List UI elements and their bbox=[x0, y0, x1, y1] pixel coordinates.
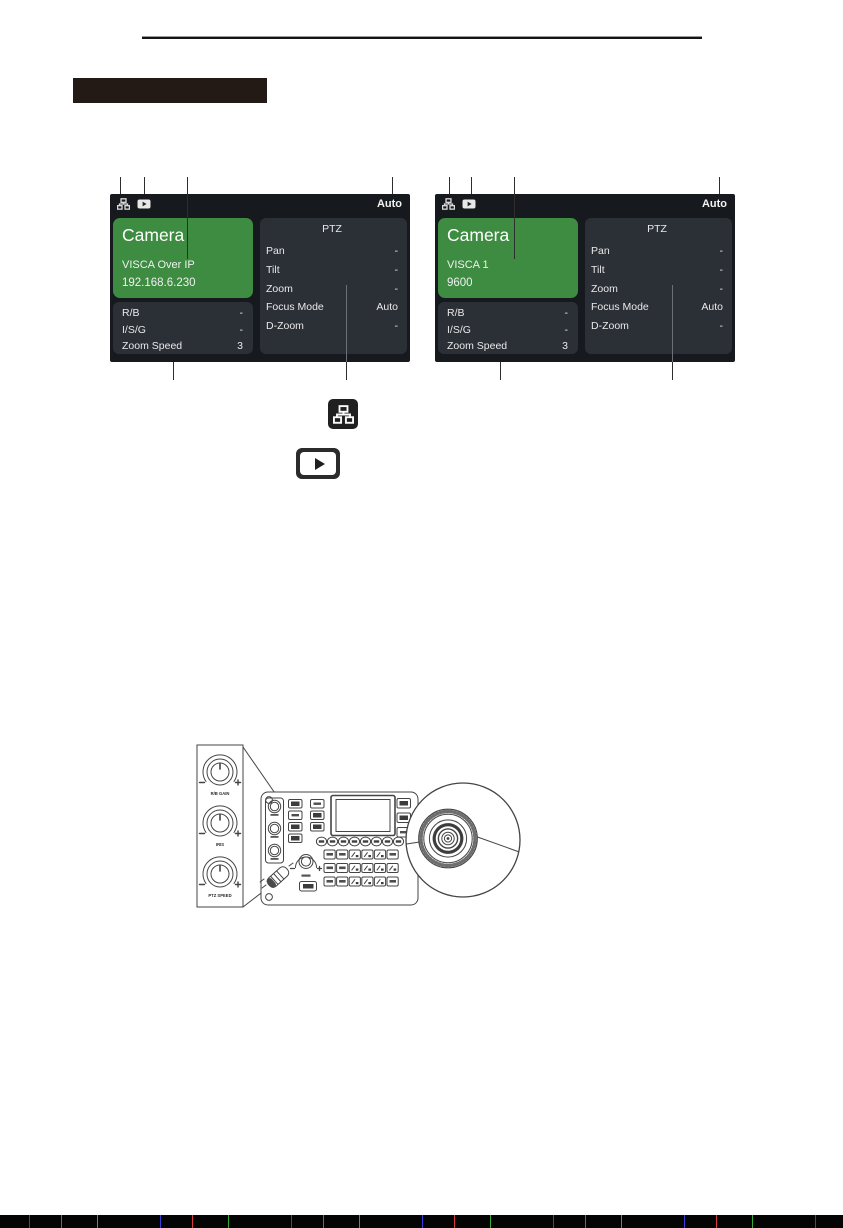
ptz-row: D-Zoom- bbox=[266, 317, 398, 336]
callout-line bbox=[449, 177, 450, 194]
callout-line bbox=[346, 285, 347, 362]
camera-address: 192.168.6.230 bbox=[122, 277, 253, 290]
settings-row: I/S/G- bbox=[447, 322, 568, 339]
callout-line bbox=[500, 362, 501, 380]
settings-row: R/B- bbox=[447, 305, 568, 322]
lcd1-status-bar: Auto bbox=[110, 194, 410, 213]
lcd-panel-1: Auto Camera VISCA Over IP 192.168.6.230 … bbox=[110, 194, 410, 362]
section-header-redacted-box bbox=[73, 78, 267, 103]
callout-line bbox=[392, 177, 393, 194]
play-icon bbox=[296, 448, 340, 479]
ptz-row: Pan- bbox=[266, 242, 398, 261]
status-mode-label: Auto bbox=[377, 198, 402, 210]
callout-line bbox=[243, 747, 279, 799]
settings-row: R/B- bbox=[122, 305, 243, 322]
lcd-panel-2: Auto Camera VISCA 1 9600 R/B- I/S/G- Zoo… bbox=[435, 194, 735, 362]
ptz-row: Tilt- bbox=[591, 261, 723, 280]
lcd2-status-bar: Auto bbox=[435, 194, 735, 213]
ptz-title: PTZ bbox=[591, 223, 723, 236]
network-icon bbox=[328, 399, 358, 429]
lcd2-camera-box: Camera VISCA 1 9600 bbox=[438, 218, 578, 298]
knob-label: R/B GAIN bbox=[211, 791, 230, 796]
callout-line bbox=[514, 177, 515, 259]
settings-row: Zoom Speed3 bbox=[447, 338, 568, 355]
knob-label: IRIS bbox=[216, 842, 224, 847]
ptz-row: D-Zoom- bbox=[591, 317, 723, 336]
lcd2-image-settings-box: R/B- I/S/G- Zoom Speed3 bbox=[438, 302, 578, 354]
lcd2-ptz-box: PTZ Pan- Tilt- Zoom- Focus ModeAuto D-Zo… bbox=[585, 218, 732, 354]
settings-row: Zoom Speed3 bbox=[122, 338, 243, 355]
camera-protocol: VISCA 1 bbox=[447, 259, 578, 272]
lcd1-camera-box: Camera VISCA Over IP 192.168.6.230 bbox=[113, 218, 253, 298]
play-triangle bbox=[315, 458, 325, 470]
ptz-row: Focus ModeAuto bbox=[266, 298, 398, 317]
keyboard-console bbox=[260, 792, 418, 905]
ptz-row: Zoom- bbox=[266, 280, 398, 299]
callout-line bbox=[346, 362, 347, 380]
network-icon bbox=[442, 198, 455, 210]
manual-page: Auto Camera VISCA Over IP 192.168.6.230 … bbox=[0, 0, 843, 1228]
ptz-row: Pan- bbox=[591, 242, 723, 261]
play-icon bbox=[462, 199, 476, 209]
ptz-keyboard-illustration: R/B GAIN IRIS PTZ SPEED bbox=[185, 735, 530, 915]
callout-line bbox=[187, 177, 188, 259]
knob-label: PTZ SPEED bbox=[208, 893, 231, 898]
ptz-row: Focus ModeAuto bbox=[591, 298, 723, 317]
network-icon bbox=[117, 198, 130, 210]
callout-line bbox=[672, 362, 673, 380]
ptz-row: Zoom- bbox=[591, 280, 723, 299]
camera-title: Camera bbox=[447, 226, 578, 245]
page-bottom-scan-bar bbox=[0, 1215, 843, 1228]
camera-protocol: VISCA Over IP bbox=[122, 259, 253, 272]
joystick-top-view bbox=[406, 783, 520, 897]
callout-line bbox=[120, 177, 121, 194]
status-mode-label: Auto bbox=[702, 198, 727, 210]
callout-line bbox=[144, 177, 145, 194]
callout-line bbox=[719, 177, 720, 194]
callout-line bbox=[672, 285, 673, 362]
lcd1-image-settings-box: R/B- I/S/G- Zoom Speed3 bbox=[113, 302, 253, 354]
callout-line bbox=[173, 362, 174, 380]
lcd1-ptz-box: PTZ Pan- Tilt- Zoom- Focus ModeAuto D-Zo… bbox=[260, 218, 407, 354]
play-icon bbox=[137, 199, 151, 209]
callout-line bbox=[471, 177, 472, 194]
top-rule bbox=[142, 36, 702, 39]
ptz-title: PTZ bbox=[266, 223, 398, 236]
ptz-row: Tilt- bbox=[266, 261, 398, 280]
settings-row: I/S/G- bbox=[122, 322, 243, 339]
camera-address: 9600 bbox=[447, 277, 578, 290]
play-icon-screen bbox=[300, 452, 336, 475]
knob-inset-panel: R/B GAIN IRIS PTZ SPEED bbox=[197, 745, 243, 907]
